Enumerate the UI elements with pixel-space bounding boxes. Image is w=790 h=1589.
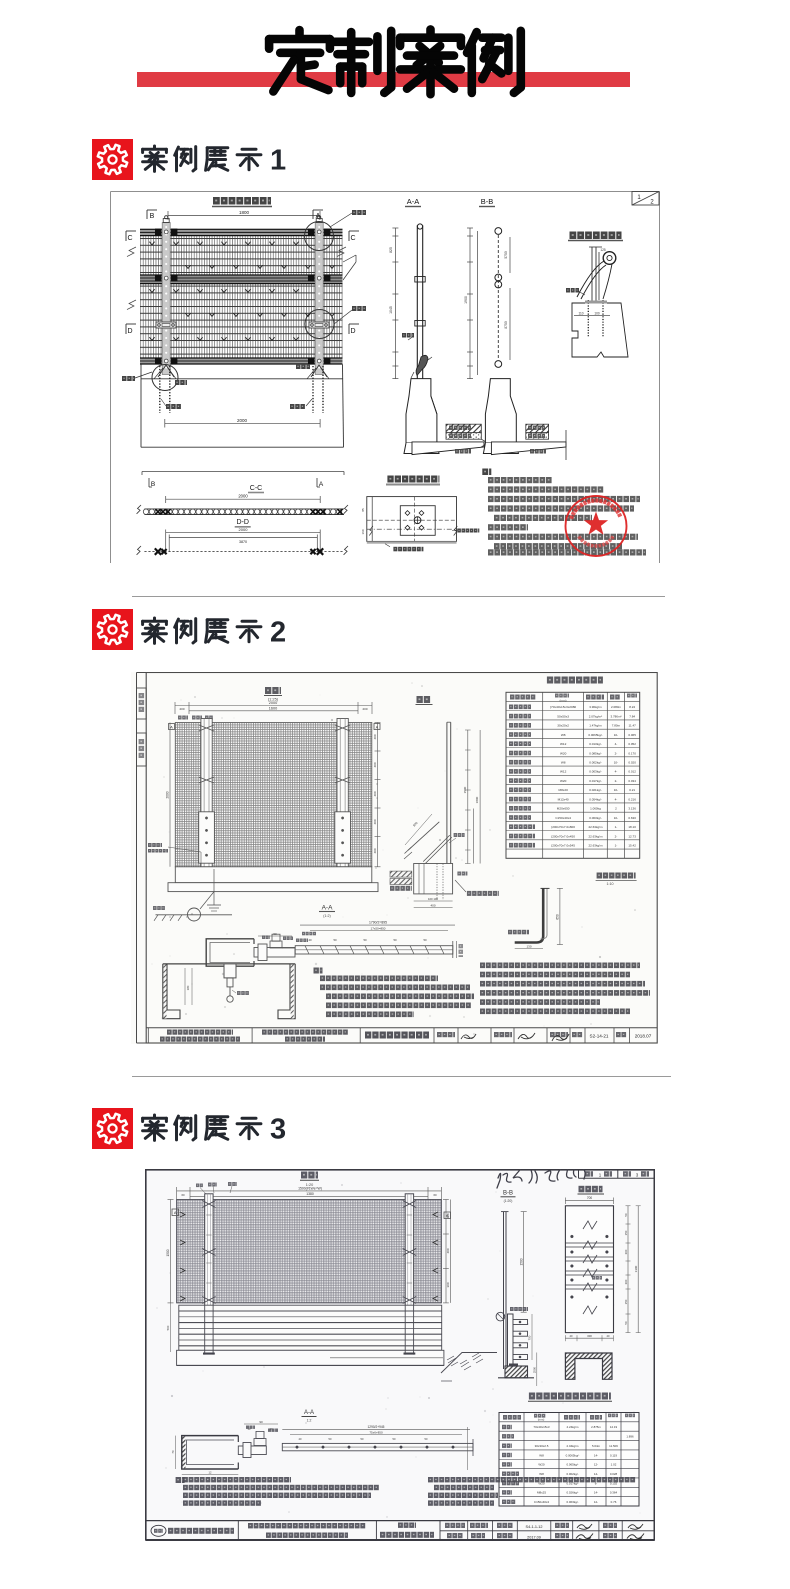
svg-text:60: 60 <box>433 1193 437 1197</box>
svg-text:75x6+850: 75x6+850 <box>369 1430 383 1434</box>
svg-text:1.060kg: 1.060kg <box>590 807 601 811</box>
svg-text:12.19: 12.19 <box>610 1425 618 1429</box>
svg-text:1800: 1800 <box>475 796 479 803</box>
svg-text:160: 160 <box>361 529 365 534</box>
svg-text:3.786m²: 3.786m² <box>610 714 621 718</box>
svg-text:0.020: 0.020 <box>628 760 636 764</box>
svg-text:B-B: B-B <box>503 1191 513 1197</box>
svg-text:2.875m: 2.875m <box>591 1425 601 1429</box>
svg-text:0.002kg/-: 0.002kg/- <box>589 760 602 764</box>
svg-text:B: B <box>150 213 155 220</box>
svg-text:2500: 2500 <box>532 1366 536 1373</box>
svg-text:3870: 3870 <box>239 540 247 544</box>
svg-text:4-: 4- <box>615 797 618 801</box>
svg-text:12-: 12- <box>594 1500 598 1504</box>
svg-text:0.0065kg/-: 0.0065kg/- <box>588 733 602 737</box>
svg-text:50: 50 <box>423 938 427 942</box>
svg-text:M8x20: M8x20 <box>559 788 569 792</box>
svg-text:A-A: A-A <box>322 905 334 912</box>
svg-text:0.013kg/-: 0.013kg/- <box>589 742 602 746</box>
svg-text:300: 300 <box>624 1279 628 1284</box>
svg-text:0.054kg/-: 0.054kg/- <box>589 797 602 801</box>
svg-text:8750: 8750 <box>504 321 508 329</box>
svg-text:1: 1 <box>270 145 286 175</box>
svg-text:C: C <box>127 235 132 242</box>
svg-text:7.84: 7.84 <box>629 714 635 718</box>
svg-text:125: 125 <box>600 248 606 252</box>
svg-text:100 100: 100 100 <box>428 897 439 901</box>
svg-text:85: 85 <box>361 508 365 512</box>
svg-text:S4-1-1-12: S4-1-1-12 <box>526 1525 543 1529</box>
svg-text:40: 40 <box>308 938 312 942</box>
svg-text:1380: 1380 <box>306 1192 314 1196</box>
svg-text:150: 150 <box>624 1299 628 1304</box>
svg-text:0.003kg/-: 0.003kg/- <box>589 770 602 774</box>
svg-text:S2-14-21: S2-14-21 <box>590 1034 609 1039</box>
svg-text:1.02: 1.02 <box>611 1463 617 1467</box>
svg-text:C-C: C-C <box>250 485 262 492</box>
svg-text:0.063kg/-: 0.063kg/- <box>589 816 602 820</box>
svg-text:0.065: 0.065 <box>628 733 636 737</box>
svg-text:180: 180 <box>186 985 190 990</box>
svg-text:D: D <box>350 328 355 335</box>
svg-text:8.24: 8.24 <box>629 705 635 709</box>
svg-text:1:2: 1:2 <box>307 1419 312 1423</box>
svg-text:22.63kg/m: 22.63kg/m <box>588 843 603 847</box>
svg-text:4.24kg/m: 4.24kg/m <box>567 1425 579 1429</box>
svg-text:130: 130 <box>526 944 531 948</box>
svg-text:300: 300 <box>624 1249 628 1254</box>
svg-text:0.017kg/-: 0.017kg/- <box>589 779 602 783</box>
svg-text:2.080m: 2.080m <box>611 705 622 709</box>
svg-text:0.21: 0.21 <box>629 788 635 792</box>
svg-text:0.216: 0.216 <box>628 797 636 801</box>
svg-text:C150x40x4: C150x40x4 <box>534 1500 550 1504</box>
svg-text:3.96kg/m: 3.96kg/m <box>589 705 602 709</box>
svg-text:[200x70x7.0x450: [200x70x7.0x450 <box>551 834 575 838</box>
svg-text:[70x40x15x3x2080: [70x40x15x3x2080 <box>550 705 576 709</box>
svg-text:W20: W20 <box>538 1463 545 1467</box>
svg-text:D-D: D-D <box>236 519 248 526</box>
svg-text:1600: 1600 <box>269 707 277 711</box>
svg-text:200: 200 <box>362 707 367 711</box>
svg-text:1500(#1We=W): 1500(#1We=W) <box>298 1186 322 1190</box>
svg-text:10-: 10- <box>614 733 618 737</box>
svg-text:0.002kg/-: 0.002kg/- <box>566 1472 578 1476</box>
svg-text:M12x40: M12x40 <box>558 797 569 801</box>
svg-text:0.085kg/-: 0.085kg/- <box>589 751 602 755</box>
svg-text:0.76: 0.76 <box>611 1500 617 1504</box>
svg-text:M20x650: M20x650 <box>557 807 570 811</box>
svg-text:14-: 14- <box>594 1472 598 1476</box>
svg-text:1.896: 1.896 <box>626 1435 634 1439</box>
svg-text:1800: 1800 <box>239 210 250 215</box>
svg-text:2018.07: 2018.07 <box>635 1034 652 1039</box>
svg-text:2000: 2000 <box>239 527 249 532</box>
svg-text:150: 150 <box>624 1230 628 1235</box>
svg-text:(1:2): (1:2) <box>323 914 330 918</box>
svg-text:0.630: 0.630 <box>628 816 636 820</box>
svg-text:100: 100 <box>594 312 600 316</box>
svg-text:1-: 1- <box>615 825 618 829</box>
svg-text:4-: 4- <box>615 770 618 774</box>
svg-text:W20: W20 <box>560 779 567 783</box>
svg-text:90: 90 <box>259 1420 263 1424</box>
svg-text:2.04kg/m: 2.04kg/m <box>567 1444 579 1448</box>
svg-text:1290/2+945: 1290/2+945 <box>368 1425 385 1429</box>
svg-text:1500: 1500 <box>519 1258 523 1265</box>
svg-text:400: 400 <box>373 819 377 824</box>
svg-text:W12: W12 <box>560 770 567 774</box>
svg-text:50: 50 <box>393 938 397 942</box>
svg-text:A-A: A-A <box>407 197 420 206</box>
svg-text:0.028: 0.028 <box>610 1472 618 1476</box>
svg-text:2000: 2000 <box>238 494 248 499</box>
svg-text:1.47kg/m: 1.47kg/m <box>589 724 602 728</box>
svg-text:12-: 12- <box>594 1463 598 1467</box>
svg-text:C150x40x4: C150x40x4 <box>555 816 571 820</box>
svg-text:2.07kg/m²: 2.07kg/m² <box>589 714 602 718</box>
svg-text:[200x70x7.0x545: [200x70x7.0x545 <box>551 843 575 847</box>
svg-text:(mm): (mm) <box>560 699 567 703</box>
svg-text:D: D <box>127 328 132 335</box>
svg-text:1500: 1500 <box>463 786 467 793</box>
svg-text:A-A: A-A <box>304 1410 314 1416</box>
svg-text:A: A <box>170 724 173 729</box>
svg-text:30x20x2: 30x20x2 <box>557 724 569 728</box>
svg-text:W12: W12 <box>560 742 567 746</box>
svg-text:700: 700 <box>587 1196 593 1200</box>
svg-text:300: 300 <box>446 1282 450 1287</box>
svg-text:0.065kg/-: 0.065kg/- <box>566 1463 578 1467</box>
svg-text:50: 50 <box>363 938 367 942</box>
svg-text:110: 110 <box>578 312 583 316</box>
svg-text:400: 400 <box>373 762 377 767</box>
svg-text:90: 90 <box>273 932 277 936</box>
svg-text:400: 400 <box>373 848 377 853</box>
svg-text:W20: W20 <box>560 751 567 755</box>
svg-text:650: 650 <box>556 914 560 920</box>
svg-text:2-: 2- <box>615 779 618 783</box>
svg-text:70x40x15x3: 70x40x15x3 <box>533 1425 550 1429</box>
svg-text:1300: 1300 <box>634 1265 638 1272</box>
svg-text:400: 400 <box>446 1248 450 1253</box>
svg-text:2000: 2000 <box>269 701 277 705</box>
svg-text:825: 825 <box>389 247 393 253</box>
svg-text:0.012: 0.012 <box>628 770 636 774</box>
svg-text:5.64m: 5.64m <box>592 1444 601 1448</box>
svg-text:0.364: 0.364 <box>610 1491 618 1495</box>
svg-text:22.63kg/m: 22.63kg/m <box>588 834 603 838</box>
svg-text:0.021kg/-: 0.021kg/- <box>589 788 602 792</box>
svg-text:10-: 10- <box>614 760 618 764</box>
svg-text:10-: 10- <box>614 788 618 792</box>
svg-text:14-: 14- <box>594 1453 598 1457</box>
svg-text:70: 70 <box>171 1450 175 1454</box>
svg-text:50: 50 <box>624 1321 628 1325</box>
svg-text:0.119: 0.119 <box>610 1453 617 1457</box>
svg-text:12.73: 12.73 <box>628 834 636 838</box>
svg-text:1900: 1900 <box>464 296 468 304</box>
svg-text:W8: W8 <box>561 733 566 737</box>
svg-text:400: 400 <box>373 791 377 796</box>
svg-text:7.80m: 7.80m <box>612 724 621 728</box>
svg-text:60: 60 <box>181 1193 185 1197</box>
svg-text:1500: 1500 <box>166 1249 170 1256</box>
svg-text:W8: W8 <box>561 760 566 764</box>
svg-text:2000: 2000 <box>237 418 248 423</box>
svg-text:B-B: B-B <box>481 197 494 206</box>
svg-text:2-: 2- <box>615 834 618 838</box>
svg-text:50: 50 <box>333 938 337 942</box>
svg-text:5750: 5750 <box>504 251 508 259</box>
svg-text:4-: 4- <box>615 742 618 746</box>
svg-text:W8: W8 <box>539 1453 544 1457</box>
svg-text:2000: 2000 <box>166 791 170 798</box>
svg-text:400: 400 <box>373 734 377 739</box>
svg-text:0.052: 0.052 <box>628 742 636 746</box>
svg-text:0.170: 0.170 <box>628 751 636 755</box>
svg-text:10-: 10- <box>614 816 618 820</box>
svg-text:11.47: 11.47 <box>629 724 637 728</box>
svg-text:(1:20): (1:20) <box>504 1199 513 1203</box>
svg-text:(mm): (mm) <box>538 1418 545 1422</box>
svg-text:A: A <box>376 724 379 729</box>
svg-text:2: 2 <box>270 617 286 647</box>
svg-text:A: A <box>174 1210 177 1215</box>
svg-text:2-: 2- <box>615 751 618 755</box>
svg-text:3: 3 <box>270 1114 286 1144</box>
svg-text:1:10: 1:10 <box>607 882 614 886</box>
svg-text:1-: 1- <box>615 843 618 847</box>
svg-text:W8: W8 <box>539 1472 544 1476</box>
svg-text:400: 400 <box>446 1213 450 1218</box>
svg-text:18.10: 18.10 <box>628 825 636 829</box>
svg-text:M8x25: M8x25 <box>537 1491 546 1495</box>
svg-text:11.506: 11.506 <box>609 1444 618 1448</box>
svg-text:50x50x3: 50x50x3 <box>557 714 569 718</box>
svg-text:[200x70x7.0x800: [200x70x7.0x800 <box>551 825 575 829</box>
svg-text:0.063kg/-: 0.063kg/- <box>566 1500 578 1504</box>
svg-text:750: 750 <box>528 1335 532 1340</box>
svg-text:14-: 14- <box>594 1491 598 1495</box>
svg-text:300: 300 <box>587 1334 592 1338</box>
svg-text:22.63kg/m: 22.63kg/m <box>588 825 603 829</box>
svg-text:C: C <box>350 235 355 242</box>
svg-text:0.0065kg/-: 0.0065kg/- <box>566 1453 580 1457</box>
svg-text:1045: 1045 <box>389 306 393 314</box>
svg-text:400: 400 <box>430 903 435 907</box>
svg-text:15.42: 15.42 <box>628 843 636 847</box>
svg-text:50: 50 <box>624 1213 628 1217</box>
svg-text:0.026kg/-: 0.026kg/- <box>566 1491 578 1495</box>
svg-text:17x50=850: 17x50=850 <box>371 926 386 930</box>
svg-text:1790/2=895: 1790/2=895 <box>369 921 387 925</box>
svg-text:30x30x2.5: 30x30x2.5 <box>535 1444 549 1448</box>
svg-text:200: 200 <box>179 707 184 711</box>
svg-text:0.034: 0.034 <box>628 779 636 783</box>
svg-text:3.136: 3.136 <box>628 807 636 811</box>
svg-text:500: 500 <box>166 1325 170 1330</box>
svg-text:2017.09: 2017.09 <box>527 1535 541 1539</box>
